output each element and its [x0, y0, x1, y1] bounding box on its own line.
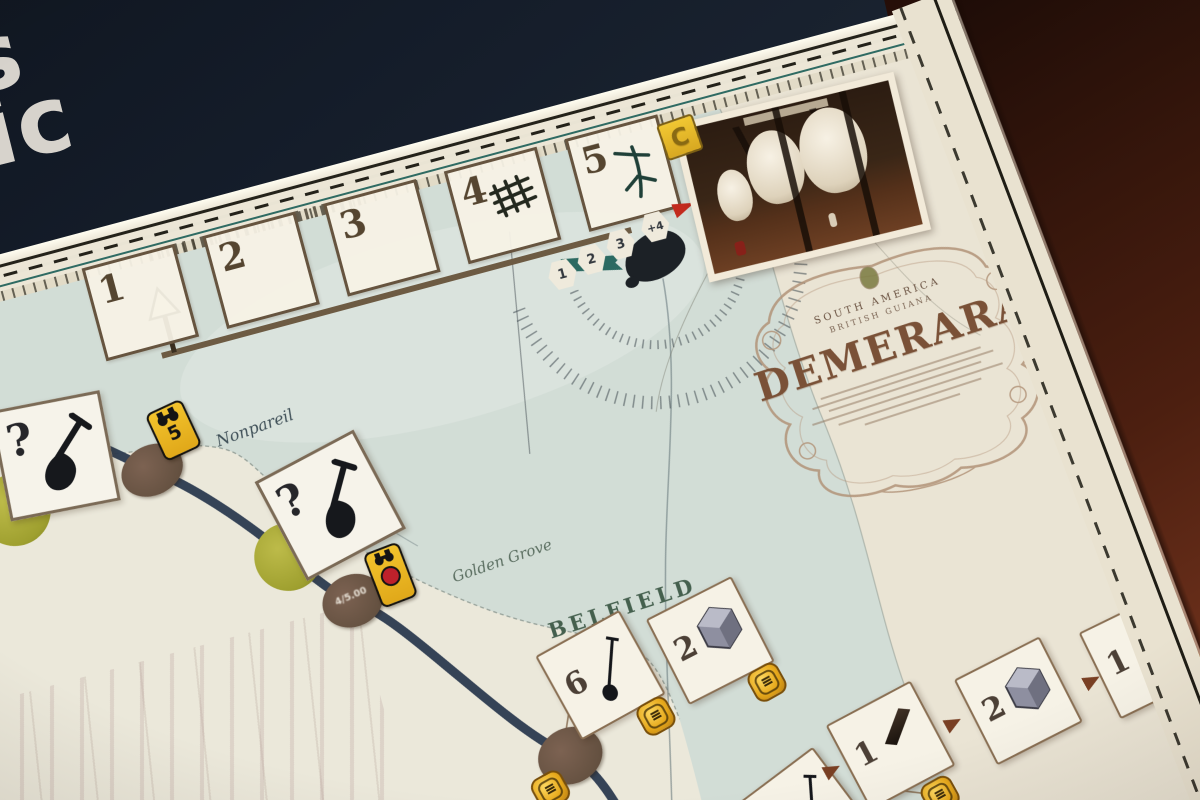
shovel-icon — [23, 408, 111, 499]
cartouche-crest-icon — [858, 265, 881, 290]
worker-figure — [828, 213, 838, 228]
sugarcane-branch-icon — [602, 137, 669, 207]
village-node-caption: 4/5.00 — [320, 579, 381, 613]
scout-badge-value: 5 — [165, 422, 185, 445]
railroad-tracks-icon — [483, 169, 544, 223]
reward-number: 1 — [1101, 642, 1136, 684]
red-signal-dot-icon — [378, 563, 404, 589]
turn-box-number: 3 — [335, 199, 371, 248]
worker-figure — [734, 241, 747, 257]
reward-number: 1 — [848, 733, 884, 775]
photo-of-demerara-board: s ic — [0, 0, 1200, 800]
mystery-tile-1: ? — [0, 390, 121, 521]
dark-bar-icon — [868, 699, 926, 752]
turn-box-number: 1 — [93, 264, 129, 313]
fine-print-line — [865, 393, 961, 426]
turn-box-number: 2 — [214, 232, 250, 281]
